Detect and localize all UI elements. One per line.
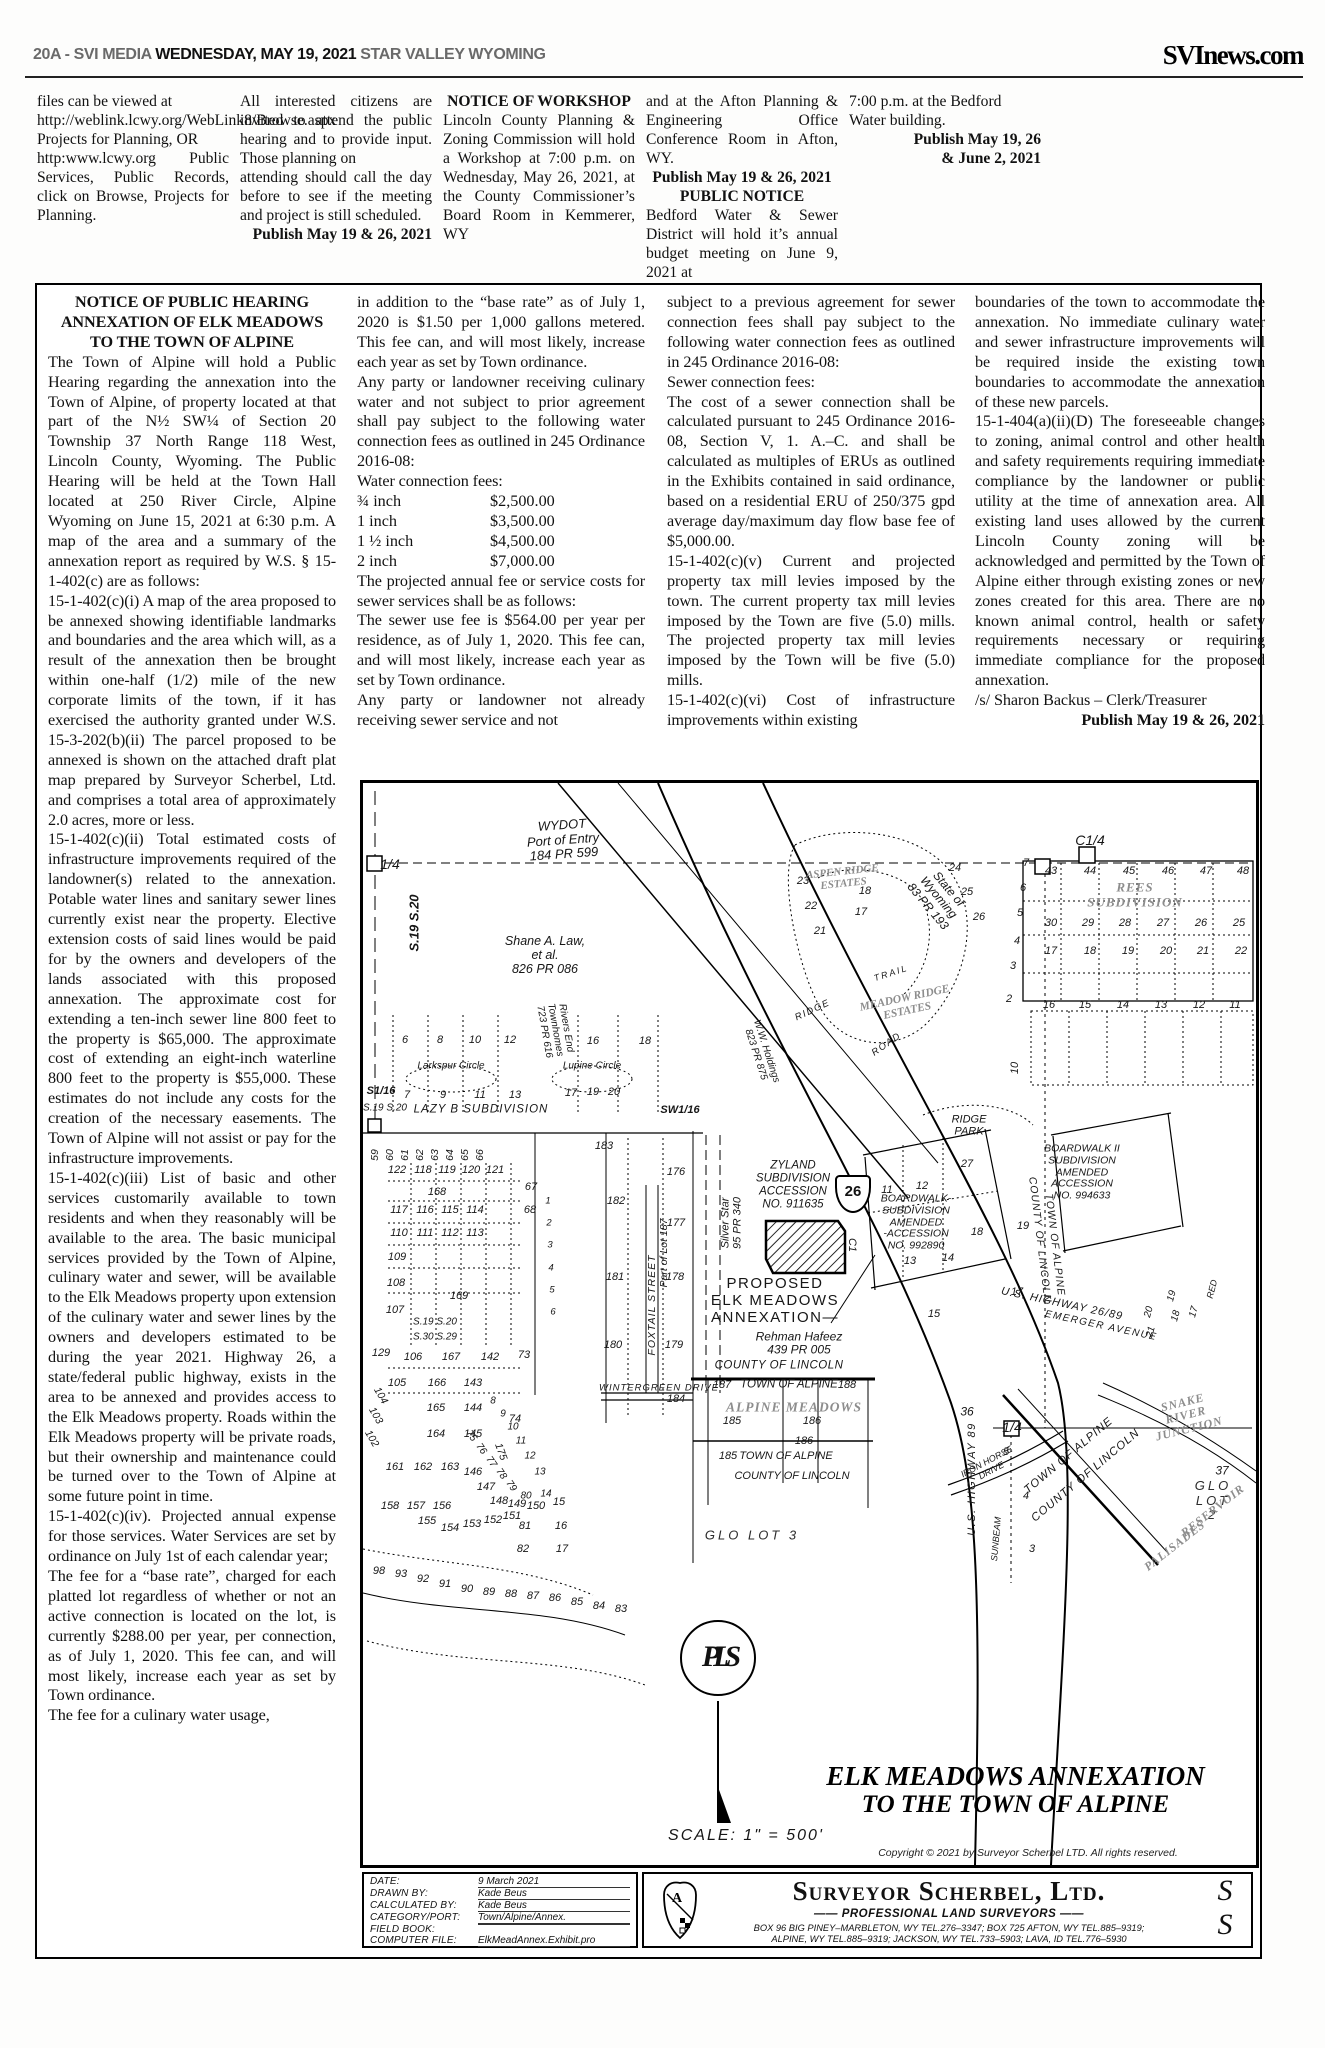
map-label: 8 xyxy=(437,1034,443,1046)
water-connection-fee-row: 1 inch$3,500.00 xyxy=(357,512,645,532)
paragraph: files can be viewed at http://weblink.lc… xyxy=(37,92,229,149)
map-label: 163 xyxy=(441,1461,459,1473)
titleblock-value: Kade Beus xyxy=(478,1900,630,1912)
map-label: S.19 S.20 xyxy=(408,894,423,951)
map-label: 6 xyxy=(402,1034,408,1046)
map-label: 186 xyxy=(795,1435,813,1447)
map-label: 142 xyxy=(481,1351,499,1363)
paragraph: The fee for a culinary water usage, xyxy=(48,1706,336,1726)
map-label: 106 xyxy=(404,1351,422,1363)
fee-size: ¾ inch xyxy=(357,492,401,511)
map-label: 91 xyxy=(439,1578,451,1590)
titleblock-row: FIELD BOOK: xyxy=(370,1924,630,1936)
map-titleblock-table: DATE:9 March 2021DRAWN BY:Kade BeusCALCU… xyxy=(362,1872,638,1948)
map-label: 18 xyxy=(971,1226,983,1238)
map-label: 147 xyxy=(477,1481,495,1493)
paragraph: 15-1-402(c)(i) A map of the area propose… xyxy=(48,592,336,831)
map-label: 118 xyxy=(414,1164,432,1176)
map-label: 13 xyxy=(534,1466,545,1477)
map-label: 25 xyxy=(961,886,973,898)
map-label: 9 xyxy=(440,1089,446,1101)
map-label: 16 xyxy=(555,1520,567,1532)
paragraph: Publish May 19 & 26, 2021 xyxy=(646,168,838,187)
map-label: 17 xyxy=(565,1087,577,1099)
paragraph: The fee for a “base rate”, charged for e… xyxy=(48,1567,336,1706)
surveyor-firm-tagline: —— PROFESSIONAL LAND SURVEYORS —— xyxy=(719,1908,1179,1920)
map-label: 65 xyxy=(460,1149,472,1161)
fee-amount: $3,500.00 xyxy=(490,512,555,531)
map-label: 18 xyxy=(639,1035,651,1047)
map-label: Shane A. Law, et al. 826 PR 086 xyxy=(505,934,585,976)
masthead-date: WEDNESDAY, MAY 19, 2021 xyxy=(155,46,356,63)
map-label: 110 xyxy=(390,1227,408,1239)
map-label: 61 xyxy=(400,1149,412,1161)
map-label: 14 xyxy=(1117,999,1129,1011)
map-label: 5 xyxy=(1017,907,1023,919)
map-label: 164 xyxy=(427,1428,445,1440)
map-label: 119 xyxy=(438,1164,456,1176)
map-label: 116 xyxy=(416,1204,434,1216)
paragraph: 15-1-402(c)(iv). Projected annual expens… xyxy=(48,1507,336,1567)
map-label: COUNTY OF LINCOLN xyxy=(734,1470,849,1482)
map-label: 154 xyxy=(441,1522,459,1534)
map-label: 3 xyxy=(1010,960,1016,972)
map-label: 6 xyxy=(1020,882,1026,894)
paragraph: All interested citizens are invited to a… xyxy=(240,92,432,168)
paragraph: Publish May 19 & 26, 2021 xyxy=(240,225,432,244)
map-label: RIDGE PARK xyxy=(952,1114,987,1139)
water-connection-fee-row: 1 ½ inch$4,500.00 xyxy=(357,532,645,552)
map-label: 107 xyxy=(386,1304,404,1316)
map-label: 10 xyxy=(507,1421,518,1432)
map-label: 11 xyxy=(1229,999,1240,1011)
fee-size: 1 inch xyxy=(357,512,397,531)
map-label: 13 xyxy=(1155,999,1167,1011)
map-label: 161 xyxy=(386,1461,404,1473)
top-strip-column-5: 7:00 p.m. at the Bedford Water building.… xyxy=(849,92,1041,168)
map-label: 11 xyxy=(881,1184,892,1196)
paragraph: 15-1-402(c)(ii) Total estimated costs of… xyxy=(48,830,336,1168)
map-label: 115 xyxy=(441,1204,459,1216)
map-label: 20 xyxy=(608,1086,620,1098)
map-label: TOWN OF ALPINE xyxy=(740,1379,838,1392)
map-label: 150 xyxy=(527,1500,545,1512)
map-label: 3 xyxy=(1029,1543,1035,1555)
map-label: 179 xyxy=(665,1339,683,1351)
map-label: 111 xyxy=(417,1227,434,1239)
map-title: ELK MEADOWS ANNEXATION TO THE TOWN OF AL… xyxy=(743,1761,1288,1819)
map-label: 143 xyxy=(464,1377,482,1389)
map-label: Silver Star 95 PR 340 xyxy=(720,1197,745,1249)
water-connection-fee-row: 2 inch$7,000.00 xyxy=(357,552,645,572)
map-label: 2 xyxy=(546,1219,551,1230)
map-label: 168 xyxy=(428,1186,446,1198)
fee-size: 1 ½ inch xyxy=(357,532,413,551)
map-label: 7 xyxy=(404,1089,410,1101)
map-label: 2 xyxy=(1006,993,1012,1005)
map-label: 17 xyxy=(855,906,867,918)
masthead-rule xyxy=(25,76,1303,78)
map-label: 20 xyxy=(1160,945,1172,957)
map-label: 13 xyxy=(509,1089,521,1101)
map-label: 181 xyxy=(606,1271,624,1283)
masthead-logo: SVInews.com xyxy=(1163,40,1303,71)
paragraph: 15-1-402(c)(iii) List of basic and other… xyxy=(48,1169,336,1507)
fee-size: 2 inch xyxy=(357,552,397,571)
map-label: 10 xyxy=(469,1034,481,1046)
map-label: WINTERGREEN DRIVE xyxy=(599,1384,719,1395)
titleblock-row: CATEGORY/PORT:Town/Alpine/Annex. xyxy=(370,1912,630,1924)
titleblock-value: Town/Alpine/Annex. xyxy=(478,1912,630,1924)
map-title-line2: TO THE TOWN OF ALPINE xyxy=(743,1791,1288,1819)
map-label: 6 xyxy=(550,1308,555,1319)
map-label: 157 xyxy=(407,1500,425,1512)
masthead: 20A - SVI MEDIA WEDNESDAY, MAY 19, 2021 … xyxy=(25,42,1303,72)
paragraph: Sewer connection fees: xyxy=(667,373,955,393)
paragraph: NOTICE OF WORKSHOP xyxy=(443,92,635,111)
map-label: 59 xyxy=(370,1149,382,1161)
map-label: 26 xyxy=(1195,917,1207,929)
map-label: 24 xyxy=(949,862,961,874)
masthead-dateline: 20A - SVI MEDIA WEDNESDAY, MAY 19, 2021 … xyxy=(33,46,546,64)
map-label: 169 xyxy=(450,1290,468,1302)
titleblock-row: COMPUTER FILE:ElkMeadAnnex.Exhibit.pro xyxy=(370,1935,630,1947)
map-label: 12 xyxy=(524,1450,535,1461)
map-label: 15 xyxy=(1079,999,1091,1011)
map-label: 152 xyxy=(484,1514,502,1526)
map-label: 23 xyxy=(797,875,809,887)
titleblock-label: COMPUTER FILE: xyxy=(370,1935,457,1946)
paragraph: Any party or landowner not already recei… xyxy=(357,691,645,731)
map-label: 84 xyxy=(593,1600,605,1612)
map-label: 1/4 xyxy=(1002,1420,1021,1436)
map-label: Lupine Circle xyxy=(563,1060,621,1071)
map-label: C1 xyxy=(846,1238,858,1252)
map-label: REES SUBDIVISION xyxy=(1075,880,1196,909)
map-label: 3 xyxy=(547,1241,552,1252)
map-label: 109 xyxy=(388,1251,406,1263)
titleblock-label: CATEGORY/PORT: xyxy=(370,1912,460,1923)
map-label: 43 xyxy=(1045,865,1057,877)
map-label: SW1/16 xyxy=(660,1104,699,1116)
map-label: 92 xyxy=(417,1573,429,1585)
map-label: 44 xyxy=(1084,865,1096,877)
paragraph: 15-1-402(c)(vi) Cost of infrastructure i… xyxy=(667,691,955,731)
map-label: 47 xyxy=(1200,865,1212,877)
map-label: 129 xyxy=(372,1347,390,1359)
paragraph: Any party or landowner receiving culinar… xyxy=(357,373,645,473)
titleblock-label: DATE: xyxy=(370,1876,400,1887)
map-label: 165 xyxy=(427,1402,445,1414)
titleblock-row: CALCULATED BY:Kade Beus xyxy=(370,1900,630,1912)
map-label: Part of Lot 187 xyxy=(659,1219,671,1288)
map-label: 81 xyxy=(519,1520,531,1532)
map-label: Rehman Hafeez 439 PR 005 xyxy=(756,1331,843,1358)
map-label: 158 xyxy=(381,1500,399,1512)
map-label: 16 xyxy=(587,1035,599,1047)
surveyor-firm-name: Surveyor Scherbel, Ltd. xyxy=(719,1876,1179,1907)
paragraph: 15-1-402(c)(v) Current and projected pro… xyxy=(667,552,955,691)
map-label: 46 xyxy=(1162,865,1174,877)
annexation-parcel xyxy=(766,1221,845,1273)
map-label: 9 xyxy=(500,1408,506,1419)
map-label: 29 xyxy=(1082,917,1094,929)
paragraph: The projected annual fee or service cost… xyxy=(357,572,645,612)
map-label: 120 xyxy=(462,1164,480,1176)
notice-column-3: subject to a previous agreement for sewe… xyxy=(667,293,955,777)
map-label: 114 xyxy=(466,1204,484,1216)
paragraph: Lincoln County Planning & Zoning Commiss… xyxy=(443,111,635,244)
paragraph: Publish May 19 & 26, 2021 xyxy=(975,711,1265,731)
map-label: 13 xyxy=(904,1255,916,1267)
map-label: S1/16 xyxy=(367,1085,396,1097)
map-title-line1: ELK MEADOWS ANNEXATION xyxy=(743,1761,1288,1791)
map-label: 98 xyxy=(373,1565,385,1577)
map-label: 64 xyxy=(445,1149,457,1161)
map-label: 185 xyxy=(723,1415,741,1427)
map-label: 25 xyxy=(1233,917,1245,929)
map-label: 176 xyxy=(667,1166,685,1178)
map-label: 37 xyxy=(1215,1464,1228,1477)
paragraph: 7:00 p.m. at the Bedford Water building. xyxy=(849,92,1041,130)
paragraph: attending should call the day before to … xyxy=(240,168,432,225)
map-label: 186 xyxy=(803,1415,821,1427)
map-label: 12 xyxy=(916,1180,928,1192)
map-label: 17 xyxy=(1045,945,1057,957)
paragraph: /s/ Sharon Backus – Clerk/Treasurer xyxy=(975,691,1265,711)
fee-amount: $2,500.00 xyxy=(490,492,555,511)
map-label: 22 xyxy=(805,900,817,912)
map-label: 27 xyxy=(1157,917,1169,929)
map-label: 27 xyxy=(961,1158,973,1170)
map-label: 82 xyxy=(517,1543,529,1555)
map-label: 15 xyxy=(553,1496,565,1508)
titleblock-label: DRAWN BY: xyxy=(370,1888,428,1899)
map-label: 108 xyxy=(387,1277,405,1289)
map-label: 182 xyxy=(607,1195,625,1207)
map-label: GLO LOT 3 xyxy=(705,1529,799,1544)
map-label: S.30 S.29 xyxy=(413,1331,457,1342)
map-label: 73 xyxy=(518,1349,530,1361)
map-label: 93 xyxy=(395,1568,407,1580)
map-label: 121 xyxy=(486,1164,504,1176)
surveyor-monogram: SS xyxy=(1205,1874,1245,1946)
top-strip: files can be viewed at http://weblink.lc… xyxy=(0,92,1325,272)
map-scale-label: SCALE: 1" = 500' xyxy=(668,1827,824,1845)
paragraph: The sewer use fee is $564.00 per year pe… xyxy=(357,611,645,691)
map-label: 11 xyxy=(474,1089,485,1101)
map-label: 17 xyxy=(556,1543,568,1555)
notice-title-line: ANNEXATION OF ELK MEADOWS xyxy=(48,313,336,333)
map-label: 1/4 xyxy=(380,857,399,873)
map-label: S.19 S.20 xyxy=(363,1102,407,1113)
map-label: FOXTAIL STREET xyxy=(647,1254,659,1355)
map-label: Larkspur Circle xyxy=(417,1060,484,1071)
map-label: ZYLAND SUBDIVISION ACCESSION NO. 911635 xyxy=(756,1159,830,1211)
map-label: 7 xyxy=(1023,857,1029,869)
paragraph: The Town of Alpine will hold a Public He… xyxy=(48,353,336,592)
map-label: 19 xyxy=(587,1086,599,1098)
top-strip-column-3: NOTICE OF WORKSHOPLincoln County Plannin… xyxy=(443,92,635,244)
map-label: 1 xyxy=(545,1197,550,1208)
titleblock-label: CALCULATED BY: xyxy=(370,1900,457,1911)
map-label: U.S. HIGHWAY 89 xyxy=(966,1422,978,1536)
map-label: 180 xyxy=(604,1339,622,1351)
map-label: 10 xyxy=(1009,1062,1021,1074)
paragraph: and at the Afton Planning & Engineering … xyxy=(646,92,838,168)
newspaper-page: { "colors": {"ink": "#111111", "outline_… xyxy=(0,0,1325,2048)
titleblock-value: Kade Beus xyxy=(478,1888,630,1900)
notice-column-1: NOTICE OF PUBLIC HEARINGANNEXATION OF EL… xyxy=(48,293,336,1943)
titleblock-value xyxy=(478,1924,630,1925)
surveyor-firm-address: BOX 96 BIG PINEY–MARBLETON, WY TEL.276–3… xyxy=(684,1923,1214,1945)
map-label: 90 xyxy=(461,1583,473,1595)
map-label: COUNTY OF LINCOLN xyxy=(715,1360,844,1373)
map-label: 89 xyxy=(483,1586,495,1598)
map-label: 155 xyxy=(418,1515,436,1527)
titleblock-row: DRAWN BY:Kade Beus xyxy=(370,1888,630,1900)
map-label: S.19 S.20 xyxy=(413,1316,457,1327)
map-label: 15 xyxy=(928,1308,940,1320)
fee-amount: $4,500.00 xyxy=(490,532,555,551)
map-label: BOARDWALK- SUBDIVISION AMENDED -ACCESSIO… xyxy=(881,1194,951,1253)
notice-title-line: TO THE TOWN OF ALPINE xyxy=(48,333,336,353)
titleblock-row: DATE:9 March 2021 xyxy=(370,1876,630,1888)
map-label: 149 xyxy=(508,1498,526,1510)
map-label: 30 xyxy=(1045,917,1057,929)
top-strip-column-2: All interested citizens are invited to a… xyxy=(240,92,432,244)
map-label: 19 xyxy=(1017,1220,1029,1232)
map-label: 60 xyxy=(385,1149,397,1161)
surveyor-banner: A Surveyor Scherbel, Ltd. —— PROFESSIONA… xyxy=(642,1872,1253,1948)
map-label: 45 xyxy=(1123,865,1135,877)
map-label: 112 xyxy=(441,1227,459,1239)
map-label: 19 xyxy=(1122,945,1134,957)
map-label: 36 xyxy=(960,1405,973,1418)
map-label: 63 xyxy=(430,1149,442,1161)
map-label: 4 xyxy=(1023,1490,1029,1502)
map-label: BOARDWALK II SUBDIVISION AMENDED ACCESSI… xyxy=(1044,1144,1120,1203)
map-label: 88 xyxy=(505,1588,517,1600)
map-label: 85 xyxy=(571,1596,583,1608)
notice-title-line: NOTICE OF PUBLIC HEARING xyxy=(48,293,336,313)
map-label: TOWN OF ALPINE xyxy=(739,1450,832,1462)
water-connection-fee-row: ¾ inch$2,500.00 xyxy=(357,492,645,512)
map-label: 5 xyxy=(549,1286,554,1297)
map-label: 86 xyxy=(549,1592,561,1604)
map-label: 144 xyxy=(464,1402,482,1414)
paragraph: PUBLIC NOTICE xyxy=(646,187,838,206)
top-strip-column-1: files can be viewed at http://weblink.lc… xyxy=(37,92,229,225)
notice-column-2: in addition to the “base rate” as of Jul… xyxy=(357,293,645,777)
map-label: 68 xyxy=(524,1204,536,1216)
map-label: 83 xyxy=(615,1603,627,1615)
fee-amount: $7,000.00 xyxy=(490,552,555,571)
paragraph: boundaries of the town to accommodate th… xyxy=(975,293,1265,412)
map-label: 162 xyxy=(414,1461,432,1473)
top-strip-column-4: and at the Afton Planning & Engineering … xyxy=(646,92,838,282)
paragraph: The cost of a sewer connection shall be … xyxy=(667,393,955,552)
titleblock-label: FIELD BOOK: xyxy=(370,1924,435,1935)
map-label: 22 xyxy=(1235,945,1247,957)
map-label: 48 xyxy=(1237,865,1249,877)
map-label: 12 xyxy=(504,1034,516,1046)
paragraph: Bedford Water & Sewer District will hold… xyxy=(646,206,838,282)
map-label: 21 xyxy=(814,925,826,937)
map-label: 8 xyxy=(490,1395,496,1406)
titleblock-value: ElkMeadAnnex.Exhibit.pro xyxy=(478,1935,630,1947)
map-label: 21 xyxy=(1197,945,1209,957)
paragraph: Publish May 19, 26 & June 2, 2021 xyxy=(849,130,1041,168)
paragraph: 15-1-404(a)(ii)(D) The foreseeable chang… xyxy=(975,412,1265,691)
titleblock-value: 9 March 2021 xyxy=(478,1876,630,1888)
map-label: 4 xyxy=(1014,935,1020,947)
map-label: 105 xyxy=(388,1377,406,1389)
map-label: 16 xyxy=(1043,999,1055,1011)
map-label: 18 xyxy=(859,885,871,897)
map-label: 5 xyxy=(1003,1446,1009,1458)
map-label: 185 xyxy=(719,1450,737,1462)
map-label: ALPINE MEADOWS xyxy=(726,1399,862,1414)
map-copyright: Copyright © 2021 by Surveyor Scherbel LT… xyxy=(803,1847,1253,1859)
map-label: 188 xyxy=(838,1379,856,1391)
map-label: 117 xyxy=(390,1204,408,1216)
map-label: 14 xyxy=(942,1252,954,1264)
map-label: 146 xyxy=(464,1466,482,1478)
paragraph: subject to a previous agreement for sewe… xyxy=(667,293,955,373)
map-label: 14 xyxy=(540,1488,551,1499)
surveyor-compass-emblem: PLS xyxy=(680,1620,756,1696)
map-label: 28 xyxy=(1119,917,1131,929)
paragraph: Water connection fees: xyxy=(357,472,645,492)
paragraph: in addition to the “base rate” as of Jul… xyxy=(357,293,645,373)
notice-column-4: boundaries of the town to accommodate th… xyxy=(975,293,1265,777)
map-label: 153 xyxy=(463,1518,481,1530)
map-label: LAZY B SUBDIVISION xyxy=(414,1104,549,1117)
map-label: 18 xyxy=(1084,945,1096,957)
map-label: 167 xyxy=(442,1351,460,1363)
map-label: 12 xyxy=(1193,999,1205,1011)
map-label: 62 xyxy=(415,1149,427,1161)
map-label: PROPOSED ELK MEADOWS ANNEXATION— xyxy=(711,1276,839,1326)
map-label: 4 xyxy=(548,1264,553,1275)
paragraph: http:www.lcwy.org Public Services, Publi… xyxy=(37,149,229,225)
map-label: 113 xyxy=(466,1227,484,1239)
map-label: 184 xyxy=(667,1393,685,1405)
map-label: 183 xyxy=(595,1140,613,1152)
map-label: 11 xyxy=(516,1435,526,1446)
svg-text:A: A xyxy=(672,1891,683,1906)
map-label: 122 xyxy=(388,1164,406,1176)
map-label: 148 xyxy=(490,1495,508,1507)
map-label: 166 xyxy=(428,1377,446,1389)
map-label: 87 xyxy=(527,1590,539,1602)
map-label: 26 xyxy=(973,911,985,923)
plat-map: WYDOT Port of Entry 184 PR 5991/4S.19 S.… xyxy=(360,780,1259,1868)
map-label: 67 xyxy=(525,1181,537,1193)
map-label: WYDOT Port of Entry 184 PR 599 xyxy=(525,816,600,865)
map-label: C1/4 xyxy=(1075,833,1105,849)
map-label: 156 xyxy=(433,1500,451,1512)
map-label: 66 xyxy=(475,1149,487,1161)
